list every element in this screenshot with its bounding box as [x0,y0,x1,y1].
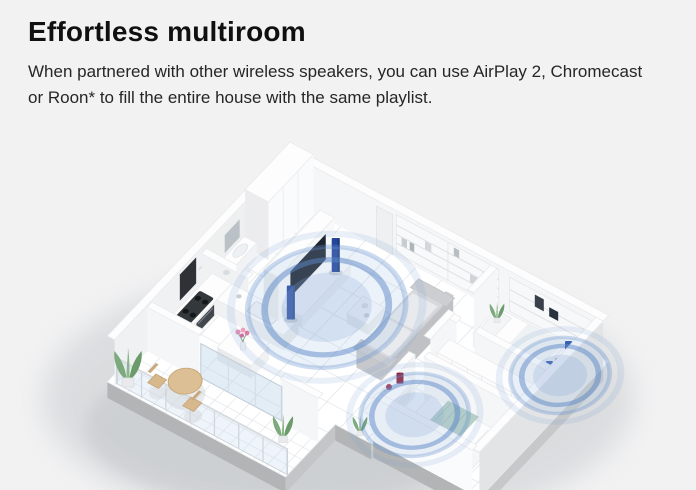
section-title: Effortless multiroom [28,14,668,50]
section-copy: Effortless multiroom When partnered with… [28,14,668,111]
multiroom-marketing-section: { "page": { "background_color": "#f2f2f3… [0,0,696,490]
section-description: When partnered with other wireless speak… [28,59,650,111]
